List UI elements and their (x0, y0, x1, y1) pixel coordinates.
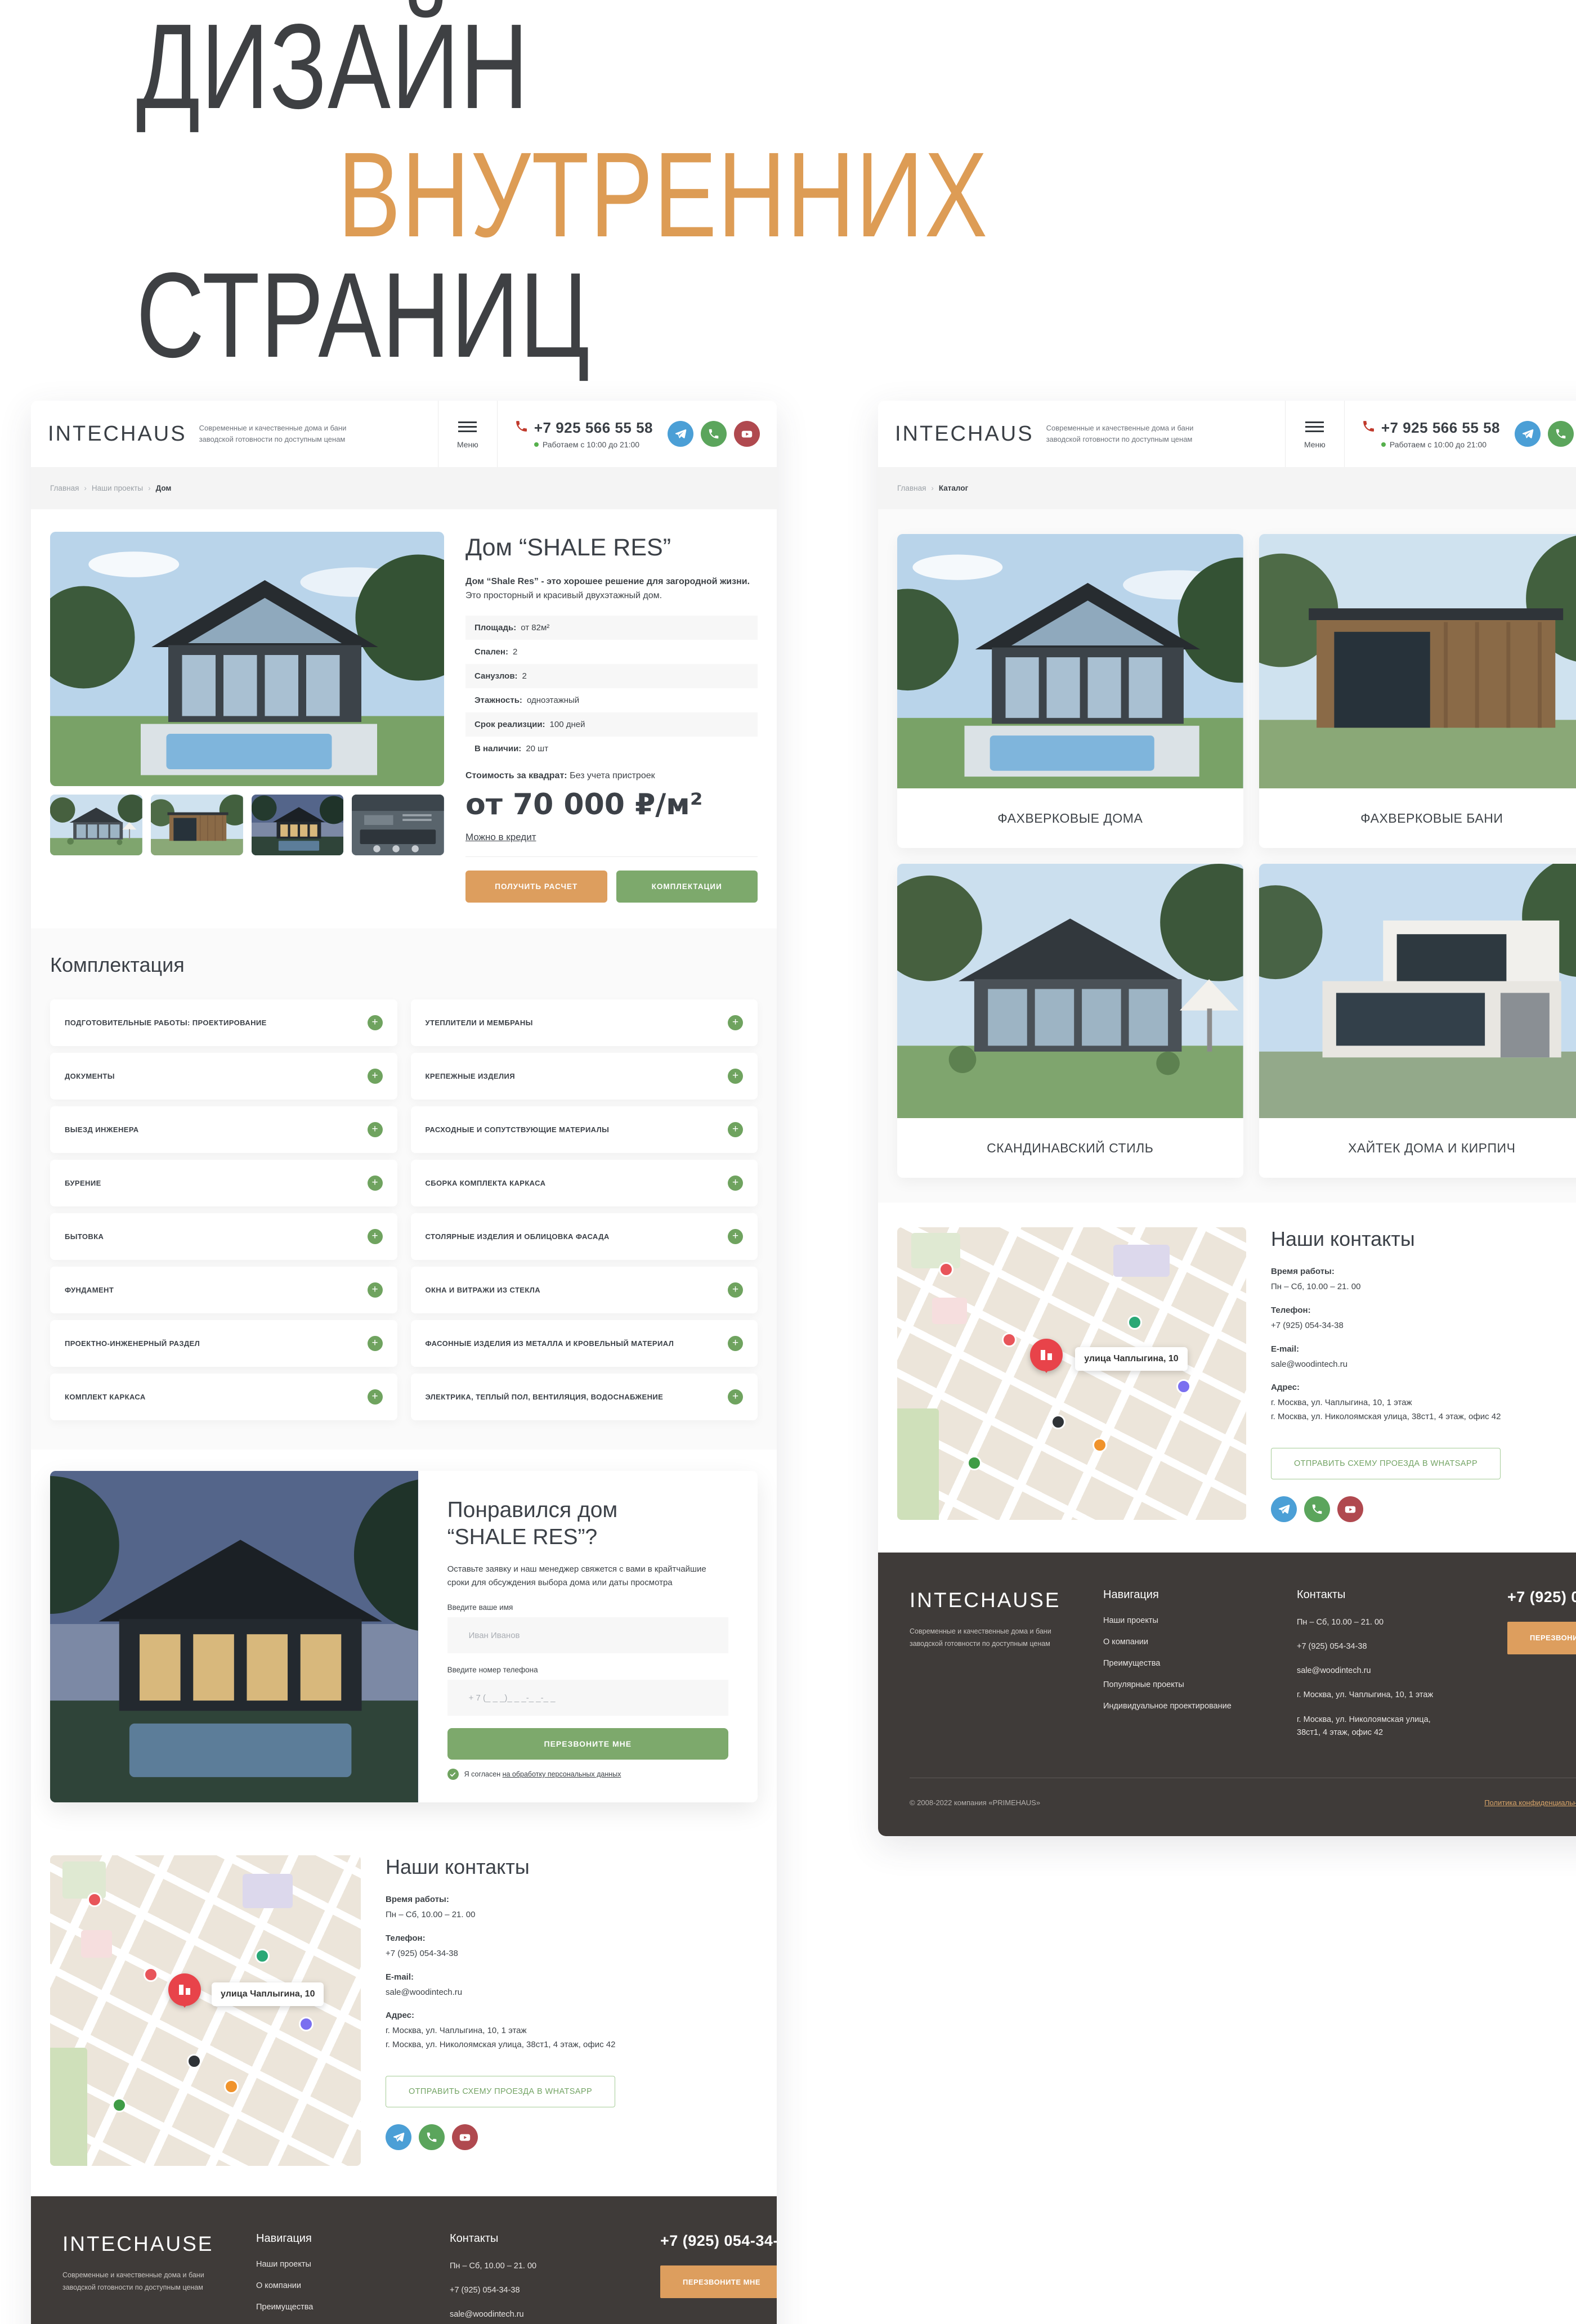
footer-schedule: Пн – Сб, 10.00 – 21. 00 (1297, 1616, 1483, 1629)
product-specs: Площадь:от 82м² Спален:2 Санузлов:2 Этаж… (465, 616, 758, 761)
logo[interactable]: INTECHAUS (48, 422, 187, 446)
map-park (897, 1408, 939, 1520)
contact-address1: г. Москва, ул. Чаплыгина, 10, 1 этаж (386, 2024, 615, 2038)
equipment-column-left: ПОДГОТОВИТЕЛЬНЫЕ РАБОТЫ: ПРОЕКТИРОВАНИЕ … (50, 999, 397, 1420)
map-poi (144, 1967, 158, 1982)
site-header: INTECHAUS Современные и качественные дом… (31, 401, 777, 467)
contacts-title: Наши контакты (386, 1855, 615, 1879)
category-photo (897, 864, 1243, 1118)
footer-tagline: Современные и качественные дома и баниза… (910, 1626, 1078, 1650)
plus-icon (368, 1015, 383, 1030)
gallery-thumb[interactable] (151, 795, 243, 855)
map-park (62, 1861, 106, 1899)
footer-email[interactable]: sale@woodintech.ru (1297, 1665, 1483, 1677)
accordion-item[interactable]: КРЕПЕЖНЫЕ ИЗДЕЛИЯ (411, 1053, 758, 1100)
footer-address1: г. Москва, ул. Чаплыгина, 10, 1 этаж (1297, 1689, 1483, 1702)
footer-logo: INTECHAUSE (62, 2232, 231, 2256)
copyright: © 2008-2022 компания «PRIMEHAUS» (910, 1798, 1040, 1807)
category-label: ФАХВЕРКОВЫЕ ДОМА (897, 788, 1243, 848)
accordion-item[interactable]: ЭЛЕКТРИКА, ТЕПЛЫЙ ПОЛ, ВЕНТИЛЯЦИЯ, ВОДОС… (411, 1374, 758, 1420)
breadcrumb-projects[interactable]: Наши проекты (92, 484, 143, 492)
footer-link-about[interactable]: О компании (256, 2281, 425, 2290)
gallery-thumb[interactable] (252, 795, 344, 855)
header-phone-block: +7 925 566 55 58 Работаем с 10:00 до 21:… (514, 419, 653, 449)
equipment-column-right: УТЕПЛИТЕЛИ И МЕМБРАНЫ КРЕПЕЖНЫЕ ИЗДЕЛИЯ … (411, 999, 758, 1420)
plus-icon (368, 1282, 383, 1298)
contacts-section: улица Чаплыгина, 10 Наши контакты Время … (31, 1831, 777, 2196)
divider (465, 856, 758, 857)
category-photo (1259, 534, 1576, 788)
map-poi (1176, 1379, 1191, 1394)
plus-icon (368, 1176, 383, 1191)
brand-tagline: Современные и качественные дома и баниза… (199, 423, 347, 445)
map-poi (87, 1892, 102, 1907)
online-dot-icon (534, 442, 539, 447)
map-block (1113, 1245, 1169, 1277)
site-footer-dark: INTECHAUSE Современные и качественные до… (878, 1553, 1576, 1836)
breadcrumb: ГлавнаяКаталог (878, 467, 1576, 509)
footer-link-popular[interactable]: Популярные проекты (1103, 1680, 1272, 1689)
telegram-icon[interactable] (1271, 1496, 1297, 1522)
youtube-icon[interactable] (452, 2124, 478, 2150)
map-block (243, 1874, 292, 1908)
product-description: Дом “Shale Res” - это хорошее решение дл… (465, 575, 758, 603)
category-card-hitech[interactable]: ХАЙТЕК ДОМА И КИРПИЧ (1259, 864, 1576, 1178)
youtube-icon[interactable] (1337, 1496, 1363, 1522)
map-pin-label: улица Чаплыгина, 10 (1075, 1347, 1187, 1371)
map-poi (1127, 1315, 1142, 1330)
accordion-item[interactable]: РАСХОДНЫЕ И СОПУТСТВУЮЩИЕ МАТЕРИАЛЫ (411, 1106, 758, 1153)
work-hours: Работаем с 10:00 до 21:00 (534, 440, 653, 449)
contacts-body: Наши контакты Время работы:Пн – Сб, 10.0… (386, 1855, 615, 2166)
consent-link[interactable]: на обработку персональных данных (503, 1770, 621, 1778)
send-route-whatsapp-button[interactable]: ОТПРАВИТЬ СХЕМУ ПРОЕЗДА В WHATSAPP (1271, 1448, 1501, 1479)
contact-address2: г. Москва, ул. Николоямская улица, 38ст1… (1271, 1410, 1501, 1424)
youtube-icon[interactable] (734, 421, 760, 447)
gallery-thumb[interactable] (50, 795, 142, 855)
footer-nav: Навигация Наши проекты О компании Преиму… (1103, 1589, 1272, 1751)
footer-link-projects[interactable]: Наши проекты (1103, 1616, 1272, 1625)
page-product: INTECHAUS Современные и качественные дом… (31, 401, 777, 2324)
map-poi (255, 1949, 270, 1963)
footer-cta: +7 (925) 054-34-38 ПЕРЕЗВОНИТЕ МНЕ (1507, 1589, 1576, 1751)
footer-tagline: Современные и качественные дома и баниза… (62, 2269, 231, 2294)
accordion-item[interactable]: ВЫЕЗД ИНЖЕНЕРА (50, 1106, 397, 1153)
category-label: СКАНДИНАВСКИЙ СТИЛЬ (897, 1118, 1243, 1178)
map-poi (1093, 1438, 1107, 1452)
category-card-scandinavian[interactable]: СКАНДИНАВСКИЙ СТИЛЬ (897, 864, 1243, 1178)
equipment-button[interactable]: КОМПЛЕКТАЦИИ (616, 871, 758, 903)
contact-phone[interactable]: +7 (925) 054-34-38 (386, 1947, 615, 1961)
form-title: Понравился дом“SHALE RES”? (447, 1497, 728, 1552)
footer-phone[interactable]: +7 (925) 054-34-38 (1297, 1640, 1483, 1653)
spec-row: Срок реализции:100 дней (465, 712, 758, 737)
map-park (911, 1233, 960, 1268)
accordion-item[interactable]: УТЕПЛИТЕЛИ И МЕМБРАНЫ (411, 999, 758, 1046)
category-card-fachwerk-baths[interactable]: ФАХВЕРКОВЫЕ БАНИ (1259, 534, 1576, 848)
product-title: Дом “SHALE RES” (465, 534, 758, 562)
category-photo (1259, 864, 1576, 1118)
phone-icon (1362, 419, 1376, 433)
equipment-section: Комплектация ПОДГОТОВИТЕЛЬНЫЕ РАБОТЫ: ПР… (31, 928, 777, 1450)
plus-icon (728, 1015, 743, 1030)
plus-icon (728, 1229, 743, 1244)
plus-icon (728, 1069, 743, 1084)
header-socials (1515, 421, 1576, 447)
footer-contacts-title: Контакты (450, 2232, 635, 2245)
footer-link-about[interactable]: О компании (1103, 1637, 1272, 1646)
map-pin-label: улица Чаплыгина, 10 (212, 1982, 324, 2006)
breadcrumb-home[interactable]: Главная (50, 484, 79, 492)
hamburger-icon (458, 419, 477, 435)
name-field[interactable] (447, 1617, 728, 1653)
work-hours: Работаем с 10:00 до 21:00 (1381, 440, 1500, 449)
page-catalog: INTECHAUS Современные и качественные дом… (878, 401, 1576, 1836)
map[interactable]: улица Чаплыгина, 10 (50, 1855, 361, 2166)
privacy-link[interactable]: Политика конфиденциальности (1484, 1798, 1576, 1807)
footer-cta: +7 (925) 054-34-38 ПЕРЕЗВОНИТЕ МНЕ (660, 2232, 777, 2324)
plus-icon (368, 1229, 383, 1244)
whatsapp-icon[interactable] (419, 2124, 445, 2150)
plus-icon (368, 1336, 383, 1351)
hamburger-icon (1305, 419, 1324, 435)
spec-row: Спален:2 (465, 640, 758, 664)
brand: INTECHAUS Современные и качественные дом… (878, 401, 1285, 467)
menu-label: Меню (457, 440, 478, 449)
plus-icon (728, 1282, 743, 1298)
phone-icon (514, 419, 529, 433)
product-section: Дом “SHALE RES” Дом “Shale Res” - это хо… (31, 509, 777, 928)
map-poi (299, 2017, 314, 2031)
telegram-icon[interactable] (386, 2124, 411, 2150)
accordion-item[interactable]: ФАСОННЫЕ ИЗДЕЛИЯ ИЗ МЕТАЛЛА И КРОВЕЛЬНЫЙ… (411, 1320, 758, 1367)
form-photo (50, 1471, 418, 1803)
accordion-item[interactable]: ДОКУМЕНТЫ (50, 1053, 397, 1100)
spec-row: Этажность:одноэтажный (465, 688, 758, 712)
name-label: Введите ваше имя (447, 1603, 728, 1612)
accordion-item[interactable]: БЫТОВКА (50, 1213, 397, 1260)
footer-logo: INTECHAUSE (910, 1589, 1078, 1612)
footer-brand: INTECHAUSE Современные и качественные до… (910, 1589, 1078, 1751)
map-pin-icon (1030, 1339, 1063, 1371)
map-poi (1002, 1333, 1017, 1347)
spec-row: В наличии:20 шт (465, 737, 758, 761)
breadcrumb-home[interactable]: Главная (897, 484, 926, 492)
contact-address1: г. Москва, ул. Чаплыгина, 10, 1 этаж (1271, 1396, 1501, 1410)
footer-link-projects[interactable]: Наши проекты (256, 2260, 425, 2269)
telegram-icon[interactable] (1515, 421, 1541, 447)
footer-email[interactable]: sale@woodintech.ru (450, 2308, 635, 2321)
footer-nav-title: Навигация (1103, 1589, 1272, 1601)
contacts-title: Наши контакты (1271, 1227, 1501, 1251)
category-label: ФАХВЕРКОВЫЕ БАНИ (1259, 788, 1576, 848)
brand-tagline: Современные и качественные дома и баниза… (1046, 423, 1194, 445)
contact-phone[interactable]: +7 (925) 054-34-38 (1271, 1319, 1501, 1333)
work-hours-value: Пн – Сб, 10.00 – 21. 00 (1271, 1280, 1501, 1294)
header-phone[interactable]: +7 925 566 55 58 (1381, 419, 1500, 437)
map-poi (187, 2054, 202, 2069)
phone-label: Введите номер телефона (447, 1666, 728, 1674)
contacts-socials (1271, 1496, 1501, 1522)
breadcrumb-current: Дом (156, 484, 172, 492)
product-gallery (50, 532, 444, 903)
checkbox-checked-icon[interactable] (447, 1769, 459, 1780)
plus-icon (368, 1389, 383, 1405)
callback-form: Понравился дом“SHALE RES”? Оставьте заяв… (418, 1471, 758, 1803)
category-label: ХАЙТЕК ДОМА И КИРПИЧ (1259, 1118, 1576, 1178)
poster-title-line3: СТРАНИЦ (136, 254, 590, 375)
spec-row: Площадь:от 82м² (465, 616, 758, 640)
equipment-title: Комплектация (50, 953, 758, 977)
menu-button[interactable]: Меню (1285, 401, 1345, 467)
contact-email[interactable]: sale@woodintech.ru (1271, 1358, 1501, 1372)
header-socials (668, 421, 760, 447)
footer-contacts: Контакты Пн – Сб, 10.00 – 21. 00 +7 (925… (450, 2232, 635, 2324)
work-hours-value: Пн – Сб, 10.00 – 21. 00 (386, 1908, 615, 1922)
get-quote-button[interactable]: ПОЛУЧИТЬ РАСЧЕТ (465, 871, 607, 903)
map-block (81, 1930, 112, 1958)
callback-form-card: Понравился дом“SHALE RES”? Оставьте заяв… (50, 1471, 758, 1803)
footer-link-advantages[interactable]: Преимущества (256, 2303, 425, 2312)
site-footer-dark: INTECHAUSE Современные и качественные до… (31, 2196, 777, 2324)
plus-icon (728, 1389, 743, 1405)
plus-icon (368, 1122, 383, 1137)
footer-contacts-title: Контакты (1297, 1589, 1483, 1601)
footer-brand: INTECHAUSE Современные и качественные до… (62, 2232, 231, 2324)
plus-icon (368, 1069, 383, 1084)
breadcrumb: ГлавнаяНаши проектыДом (31, 467, 777, 509)
send-route-whatsapp-button[interactable]: ОТПРАВИТЬ СХЕМУ ПРОЕЗДА В WHATSAPP (386, 2076, 615, 2107)
contacts-socials (386, 2124, 615, 2150)
callback-button[interactable]: ПЕРЕЗВОНИТЕ МНЕ (447, 1728, 728, 1760)
product-info: Дом “SHALE RES” Дом “Shale Res” - это хо… (465, 532, 758, 903)
accordion-item[interactable]: ФУНДАМЕНТ (50, 1267, 397, 1313)
whatsapp-icon[interactable] (1548, 421, 1574, 447)
header-contacts: +7 925 566 55 58 Работаем с 10:00 до 21:… (1345, 401, 1576, 467)
map-poi (967, 1456, 982, 1470)
catalog-grid: ФАХВЕРКОВЫЕ ДОМА ФАХВЕРКОВЫЕ БАНИ СКАНДИ… (878, 509, 1576, 1203)
price-note: Стоимость за квадрат: Без учета пристрое… (465, 771, 758, 781)
credit-link[interactable]: Можно в кредит (465, 832, 536, 843)
product-price: от 70 000 ₽/м² (465, 788, 758, 822)
online-dot-icon (1381, 442, 1386, 447)
plus-icon (728, 1176, 743, 1191)
plus-icon (728, 1122, 743, 1137)
whatsapp-icon[interactable] (701, 421, 727, 447)
footer-big-phone[interactable]: +7 (925) 054-34-38 (660, 2232, 777, 2250)
map-park (50, 2048, 87, 2166)
poster-title-line1: ДИЗАЙН (136, 6, 529, 127)
whatsapp-icon[interactable] (1304, 1496, 1330, 1522)
accordion-item[interactable]: КОМПЛЕКТ КАРКАСА (50, 1374, 397, 1420)
accordion-item[interactable]: ПОДГОТОВИТЕЛЬНЫЕ РАБОТЫ: ПРОЕКТИРОВАНИЕ (50, 999, 397, 1046)
header-phone[interactable]: +7 925 566 55 58 (534, 419, 653, 437)
category-photo (897, 534, 1243, 788)
footer-schedule: Пн – Сб, 10.00 – 21. 00 (450, 2260, 635, 2273)
footer-big-phone[interactable]: +7 (925) 054-34-38 (1507, 1589, 1576, 1606)
footer-link-advantages[interactable]: Преимущества (1103, 1659, 1272, 1668)
contacts-section: улица Чаплыгина, 10 Наши контакты Время … (878, 1203, 1576, 1553)
contacts-body: Наши контакты Время работы:Пн – Сб, 10.0… (1271, 1227, 1501, 1522)
telegram-icon[interactable] (668, 421, 693, 447)
accordion-item[interactable]: ОКНА И ВИТРАЖИ ИЗ СТЕКЛА (411, 1267, 758, 1313)
footer-nav: Навигация Наши проекты О компании Преиму… (256, 2232, 425, 2324)
map-pin-icon (168, 1973, 201, 2006)
contact-address2: г. Москва, ул. Николоямская улица, 38ст1… (386, 2038, 615, 2052)
gallery-thumb[interactable] (352, 795, 444, 855)
consent-row: Я согласен на обработку персональных дан… (447, 1769, 728, 1780)
poster-title-line2: ВНУТРЕННИХ (338, 134, 988, 255)
spec-row: Санузлов:2 (465, 664, 758, 688)
footer-link-individual[interactable]: Индивидуальное проектирование (1103, 1702, 1272, 1711)
footer-nav-title: Навигация (256, 2232, 425, 2245)
contact-email[interactable]: sale@woodintech.ru (386, 1986, 615, 2000)
footer-callback-button[interactable]: ПЕРЕЗВОНИТЕ МНЕ (1507, 1622, 1576, 1654)
plus-icon (728, 1336, 743, 1351)
breadcrumb-current: Каталог (939, 484, 968, 492)
product-main-photo (50, 532, 444, 786)
site-header: INTECHAUS Современные и качественные дом… (878, 401, 1576, 467)
menu-label: Меню (1304, 440, 1326, 449)
header-phone-block: +7 925 566 55 58 Работаем с 10:00 до 21:… (1362, 419, 1500, 449)
footer-phone[interactable]: +7 (925) 054-34-38 (450, 2284, 635, 2297)
accordion-item[interactable]: ПРОЕКТНО-ИНЖЕНЕРНЫЙ РАЗДЕЛ (50, 1320, 397, 1367)
phone-field[interactable] (447, 1680, 728, 1716)
map-poi (224, 2079, 239, 2094)
form-text: Оставьте заявку и наш менеджер свяжется … (447, 1563, 728, 1590)
footer-callback-button[interactable]: ПЕРЕЗВОНИТЕ МНЕ (660, 2265, 777, 2298)
map-poi (1051, 1415, 1065, 1429)
gallery-thumbnails (50, 795, 444, 855)
header-contacts: +7 925 566 55 58 Работаем с 10:00 до 21:… (498, 401, 777, 467)
footer-contacts: Контакты Пн – Сб, 10.00 – 21. 00 +7 (925… (1297, 1589, 1483, 1751)
map[interactable]: улица Чаплыгина, 10 (897, 1227, 1246, 1520)
category-card-fachwerk-houses[interactable]: ФАХВЕРКОВЫЕ ДОМА (897, 534, 1243, 848)
map-block (932, 1298, 967, 1324)
menu-button[interactable]: Меню (438, 401, 498, 467)
accordion-item[interactable]: СБОРКА КОМПЛЕКТА КАРКАСА (411, 1160, 758, 1206)
accordion-item[interactable]: БУРЕНИЕ (50, 1160, 397, 1206)
map-poi (939, 1262, 953, 1277)
footer-address2: г. Москва, ул. Николоямская улица,38ст1,… (1297, 1713, 1483, 1739)
map-poi (112, 2098, 127, 2112)
brand: INTECHAUS Современные и качественные дом… (31, 401, 438, 467)
accordion-item[interactable]: СТОЛЯРНЫЕ ИЗДЕЛИЯ И ОБЛИЦОВКА ФАСАДА (411, 1213, 758, 1260)
logo[interactable]: INTECHAUS (895, 422, 1034, 446)
